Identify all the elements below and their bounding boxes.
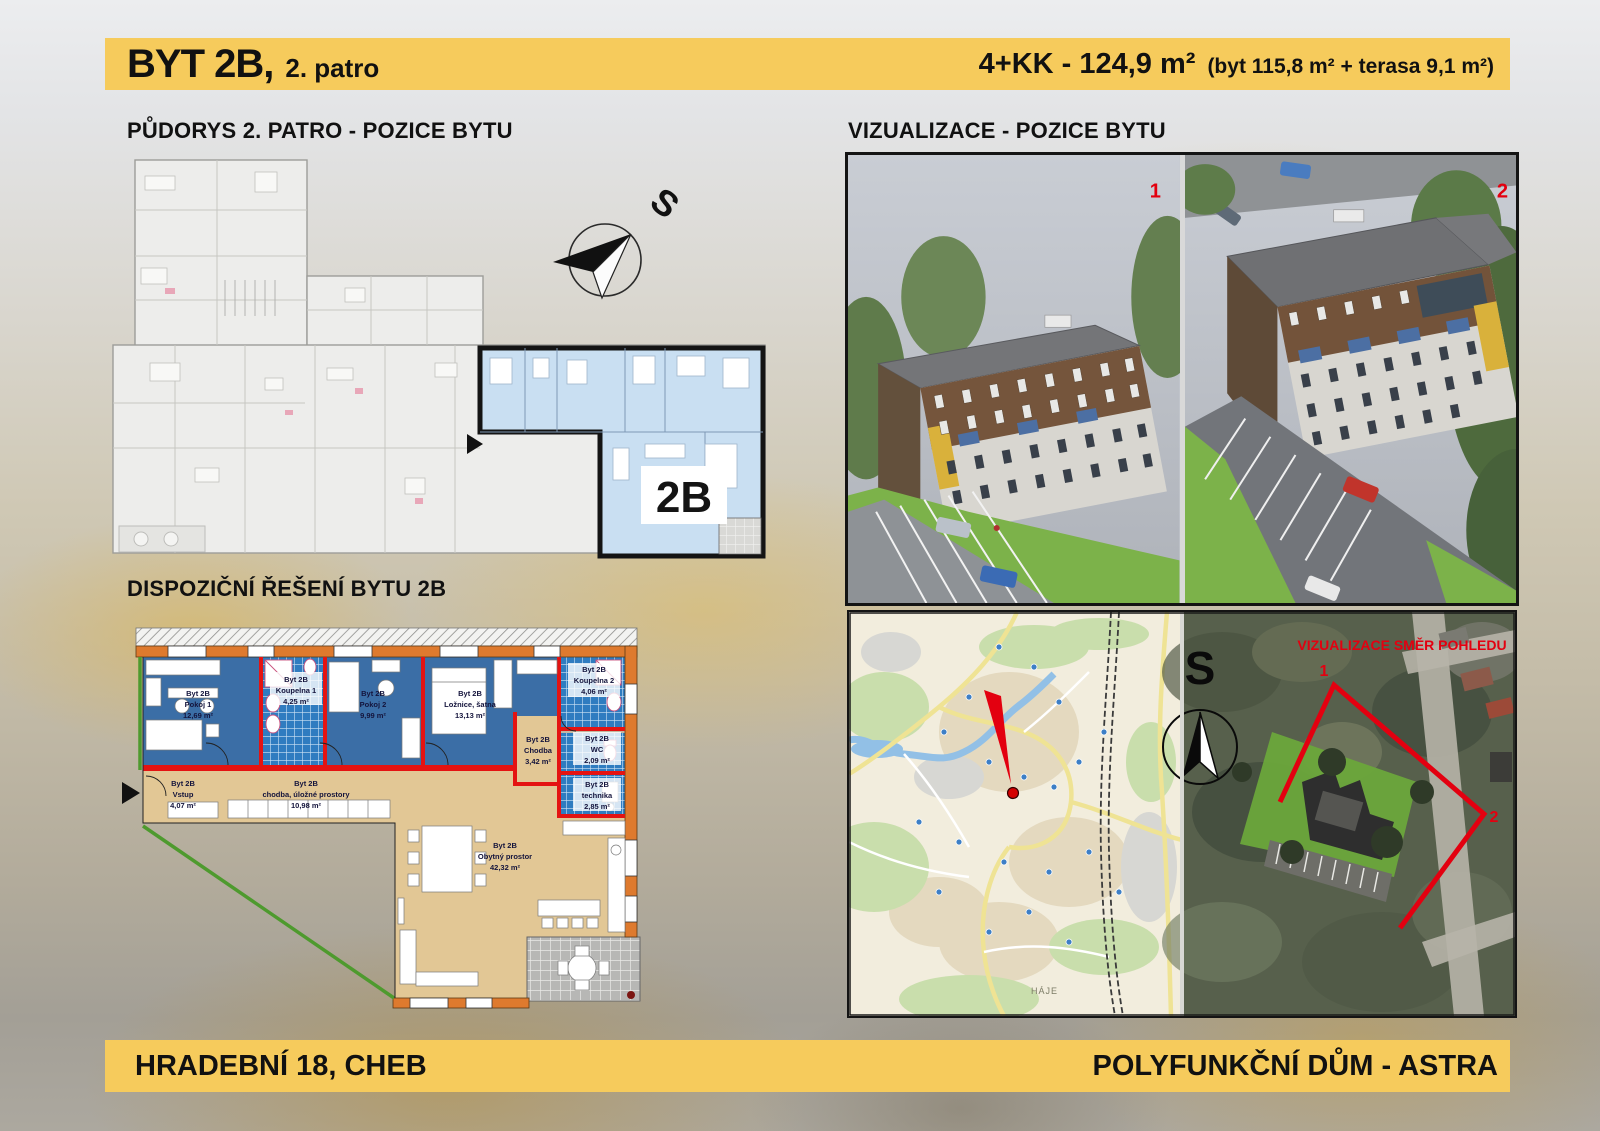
situation-panel: HÁJE [847,610,1517,1018]
room-label-technika: Byt 2B technika 2,85 m² [582,780,613,811]
svg-text:Byt 2B: Byt 2B [186,689,210,698]
svg-text:2,85 m²: 2,85 m² [584,802,610,811]
footer-project-name: POLYFUNKČNÍ DŮM - ASTRA [1093,1050,1498,1083]
svg-text:9,99 m²: 9,99 m² [360,711,386,720]
svg-text:Byt 2B: Byt 2B [294,779,318,788]
footer-address: HRADEBNÍ 18, CHEB [135,1050,427,1083]
map-place-label: HÁJE [1031,986,1058,996]
page-title: BYT 2B, [127,42,273,87]
footer-bar: HRADEBNÍ 18, CHEB POLYFUNKČNÍ DŮM - ASTR… [105,1040,1510,1092]
svg-text:Obytný prostor: Obytný prostor [478,852,532,861]
room-label-pokoj2: Byt 2B Pokoj 2 9,99 m² [360,689,387,720]
entry-arrow-icon [122,782,140,804]
svg-text:technika: technika [582,791,613,800]
svg-text:12,69 m²: 12,69 m² [183,711,214,720]
svg-text:WC: WC [591,745,604,754]
visualization-image-1: 1 [848,155,1180,603]
svg-text:Koupelna 2: Koupelna 2 [574,676,614,685]
brochure-page: BYT 2B, 2. patro 4+KK - 124,9 m² (byt 11… [0,0,1600,1131]
area-spec: 4+KK - 124,9 m² [979,48,1196,81]
svg-text:Byt 2B: Byt 2B [582,665,606,674]
section-title-layout: DISPOZIČNÍ ŘEŠENÍ BYTU 2B [127,576,446,602]
roof-hatch-strip [136,628,637,646]
svg-text:Chodba: Chodba [524,746,553,755]
corner-dot [627,991,635,999]
svg-text:10,98 m²: 10,98 m² [291,801,322,810]
location-dot [1008,788,1019,799]
view-number-1: 1 [1320,663,1329,680]
unit-2b-label: 2B [656,473,712,522]
view-number-2: 2 [1490,809,1499,826]
apartment-layout-plan: Byt 2B Pokoj 1 12,69 m² Byt 2B Koupelna … [110,600,655,1024]
svg-text:Byt 2B: Byt 2B [526,735,550,744]
svg-text:42,32 m²: 42,32 m² [490,863,521,872]
city-map: HÁJE [849,612,1182,1016]
svg-text:Byt 2B: Byt 2B [585,734,609,743]
svg-text:Byt 2B: Byt 2B [585,780,609,789]
compass-north-label: S [1185,642,1216,694]
svg-text:Ložnice, šatna: Ložnice, šatna [444,700,497,709]
svg-text:13,13 m²: 13,13 m² [455,711,486,720]
area-spec-detail: (byt 115,8 m² + terasa 9,1 m²) [1207,55,1494,79]
svg-text:2,09 m²: 2,09 m² [584,756,610,765]
svg-text:Pokoj 2: Pokoj 2 [360,700,387,709]
svg-text:4,25 m²: 4,25 m² [283,697,309,706]
svg-text:Pokoj 1: Pokoj 1 [185,700,212,709]
svg-text:Koupelna 1: Koupelna 1 [276,686,316,695]
view-number-1: 1 [1150,180,1161,202]
svg-text:Byt 2B: Byt 2B [171,779,195,788]
svg-text:Byt 2B: Byt 2B [493,841,517,850]
image-divider [1180,612,1184,1016]
floor-subtitle: 2. patro [285,53,379,84]
room-label-pokoj1: Byt 2B Pokoj 1 12,69 m² [183,689,214,720]
header-bar: BYT 2B, 2. patro 4+KK - 124,9 m² (byt 11… [105,38,1510,90]
section-title-floorplan: PŮDORYS 2. PATRO - POZICE BYTU [127,118,513,144]
svg-text:Vstup: Vstup [173,790,194,799]
svg-text:Byt 2B: Byt 2B [458,689,482,698]
visualization-image-2: 2 [1185,155,1517,603]
room-label-vstup: Byt 2B Vstup 4,07 m² [170,779,196,810]
compass-icon [553,224,641,298]
balcony-lower-left [119,526,205,552]
room-label-chodba: Byt 2B Chodba 3,42 m² [524,735,553,766]
svg-text:4,07 m²: 4,07 m² [170,801,196,810]
situation-graphics: HÁJE [849,612,1515,1016]
svg-text:Byt 2B: Byt 2B [361,689,385,698]
svg-text:3,42 m²: 3,42 m² [525,757,551,766]
svg-text:Byt 2B: Byt 2B [284,675,308,684]
view-number-2: 2 [1496,180,1507,202]
svg-text:4,06 m²: 4,06 m² [581,687,607,696]
compass-north-label: S [643,179,687,226]
visualization-panel: 1 [845,152,1519,606]
section-title-visualization: VIZUALIZACE - POZICE BYTU [848,118,1166,144]
overlay-title: VIZUALIZACE SMĚR POHLEDU [1297,636,1506,653]
svg-text:chodba, úložné prostory: chodba, úložné prostory [262,790,350,799]
person [994,525,1000,531]
floor-overview-plan: 2B S [105,148,775,566]
